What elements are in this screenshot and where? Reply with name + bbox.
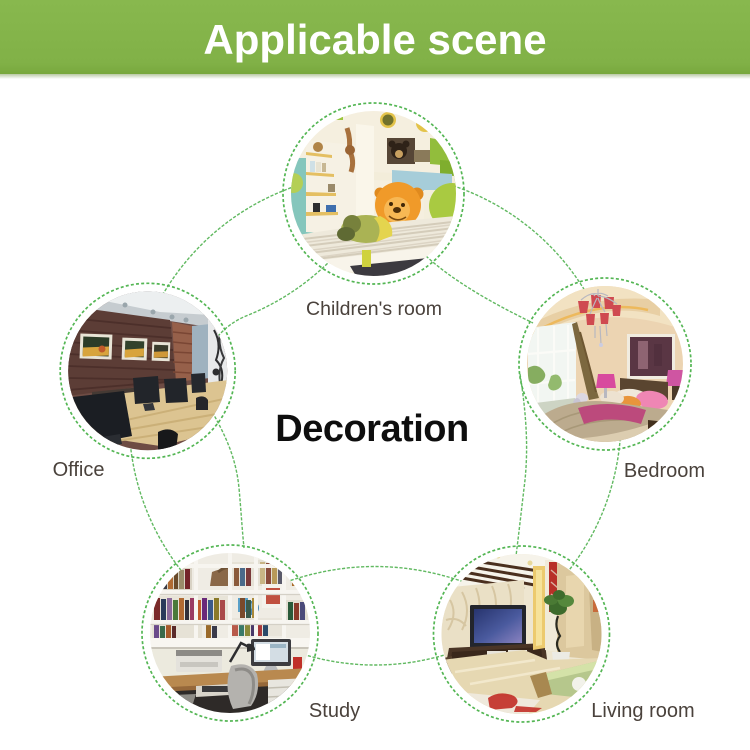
svg-text:Applicable scene: Applicable scene bbox=[203, 16, 546, 63]
svg-text:Living room: Living room bbox=[591, 700, 694, 722]
svg-text:Decoration: Decoration bbox=[275, 408, 468, 450]
svg-text:Office: Office bbox=[53, 459, 105, 481]
svg-text:Study: Study bbox=[309, 700, 360, 722]
svg-text:Bedroom: Bedroom bbox=[624, 460, 705, 482]
svg-text:Children's room: Children's room bbox=[306, 298, 442, 320]
